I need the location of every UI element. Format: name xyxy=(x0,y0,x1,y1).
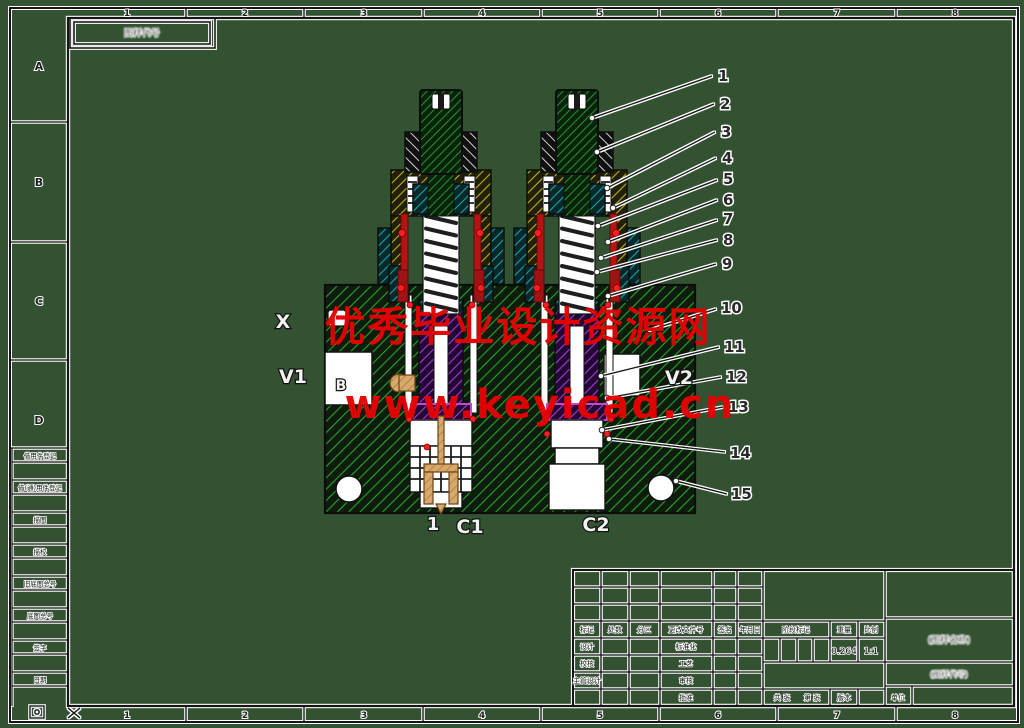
port-label-c2: C2 xyxy=(582,514,609,536)
row-letter: B xyxy=(35,176,43,189)
top-zone-number: 5 xyxy=(597,9,603,19)
callout-number: 2 xyxy=(720,95,730,113)
engineering-drawing: 1 2 3 4 5 6 7 8 1 2 3 4 5 6 7 8 A B C D … xyxy=(0,0,1024,728)
tb-change-header: 签名 xyxy=(718,625,732,634)
stamp-label: 借(通)用件登记 xyxy=(18,483,63,492)
tb-change-header: 年月日 xyxy=(740,625,761,634)
tb-weight-value: 0.264 xyxy=(831,647,857,657)
tb-role: 标准化 xyxy=(676,642,697,651)
top-zone-number: 3 xyxy=(361,9,367,19)
top-zone-number: 1 xyxy=(124,9,130,19)
bottom-zone-number: 5 xyxy=(597,711,603,721)
tb-role: 校核 xyxy=(580,659,594,668)
tb-drawing-name: (图样名称) xyxy=(927,634,970,646)
tb-drawing-code: (图样代号) xyxy=(930,669,968,679)
tb-unit: 单位 xyxy=(891,693,905,702)
stamp-label: 描校 xyxy=(34,547,48,556)
callout-number: 1 xyxy=(718,67,728,85)
bottom-zone-number: 6 xyxy=(715,711,721,721)
tb-weight-label: 重量 xyxy=(837,626,851,634)
callout-number: 7 xyxy=(723,210,733,228)
port-c2-step xyxy=(555,448,599,464)
callout-number: 8 xyxy=(723,231,733,249)
top-zone-number: 7 xyxy=(834,9,840,19)
callout-number: 6 xyxy=(723,191,733,209)
row-letter: C xyxy=(35,295,43,308)
stamp-label: 日期 xyxy=(34,676,48,684)
top-zone-number: 4 xyxy=(479,9,485,19)
bottom-zone-number: 1 xyxy=(124,711,130,721)
cad-drawing-canvas: 1 2 3 4 5 6 7 8 1 2 3 4 5 6 7 8 A B C D … xyxy=(0,0,1024,728)
tb-sheets: 共 张 xyxy=(774,693,790,702)
watermark-line1: 优秀毕业设计资源网 xyxy=(325,303,712,351)
mounting-hole-right xyxy=(648,475,674,501)
tb-scale-value: 1:1 xyxy=(864,647,878,657)
bottom-zone-number: 7 xyxy=(834,711,840,721)
bottom-zone-number: 2 xyxy=(242,711,248,721)
tb-change-header: 处数 xyxy=(608,625,622,634)
row-letter: A xyxy=(35,60,44,73)
callout-number: 10 xyxy=(721,299,742,317)
callout-number: 5 xyxy=(723,170,733,188)
top-zone-number: 6 xyxy=(715,9,721,19)
bottom-zone-number: 3 xyxy=(361,711,367,721)
top-zone-number: 2 xyxy=(242,9,248,19)
tb-role: 主管设计 xyxy=(573,676,601,685)
callout-number: 3 xyxy=(721,123,731,141)
bottom-zone-number: 8 xyxy=(952,711,958,721)
port-c2-cavity xyxy=(549,464,605,510)
callout-number: 15 xyxy=(731,485,752,503)
tb-role: 批准 xyxy=(679,693,693,702)
tb-scale-label: 比例 xyxy=(864,625,878,634)
callout-number: 9 xyxy=(722,255,732,273)
stamp-label: 签字 xyxy=(34,643,48,652)
stamp-label: 旧底图总号 xyxy=(24,579,57,588)
mounting-hole-left xyxy=(336,476,362,502)
tb-role: 设计 xyxy=(580,642,594,651)
flow-mark: 1 xyxy=(427,514,440,535)
top-zone-number: 8 xyxy=(952,9,958,19)
tb-change-header: 更改文件号 xyxy=(669,625,704,634)
tb-change-header: 标记 xyxy=(580,625,594,634)
corner-box-text: 图样代号 xyxy=(124,27,160,39)
port-label-x: X xyxy=(276,311,291,333)
callout-number: 4 xyxy=(722,149,732,167)
stamp-label: 借用件登记 xyxy=(24,451,57,460)
port-label-v1: V1 xyxy=(279,366,307,388)
stamp-label: 描图 xyxy=(34,515,47,524)
row-letter: D xyxy=(34,414,43,427)
port-label-c1: C1 xyxy=(456,516,483,538)
stamp-label: 底图总号 xyxy=(27,611,54,620)
tb-role: 工艺 xyxy=(679,660,693,668)
tb-stage-label: 阶段标记 xyxy=(782,625,810,634)
watermark-line2: www.keyicad.cn xyxy=(345,382,736,428)
bottom-zone-number: 4 xyxy=(479,711,485,721)
tb-version: 版本 xyxy=(837,693,851,702)
tb-change-header: 分区 xyxy=(637,625,651,634)
callout-number: 11 xyxy=(724,338,745,356)
tb-role: 审核 xyxy=(679,676,693,685)
callout-number: 14 xyxy=(730,444,751,462)
tb-sheet-no: 第 张 xyxy=(804,693,820,702)
